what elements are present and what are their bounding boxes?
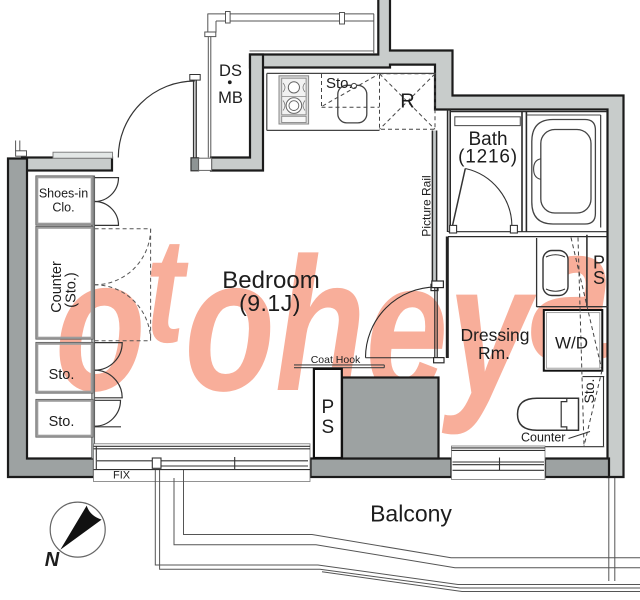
- svg-text:Sto.: Sto.: [326, 75, 353, 92]
- svg-text:(Sto.): (Sto.): [64, 272, 80, 307]
- svg-text:Clo.: Clo.: [52, 201, 74, 215]
- svg-text:Coat Hook: Coat Hook: [311, 354, 361, 366]
- svg-text:N: N: [45, 549, 60, 571]
- svg-text:Dressing: Dressing: [460, 325, 529, 345]
- svg-text:Picture Rail: Picture Rail: [419, 175, 433, 236]
- svg-text:S: S: [321, 417, 334, 438]
- svg-text:Rm.: Rm.: [478, 343, 510, 363]
- svg-text:Counter: Counter: [521, 431, 565, 445]
- svg-text:W/D: W/D: [555, 334, 588, 353]
- svg-text:P: P: [321, 397, 334, 418]
- svg-text:S: S: [593, 268, 605, 288]
- svg-text:DS: DS: [219, 62, 242, 80]
- svg-text:Sto.: Sto.: [49, 414, 75, 430]
- svg-text:MB: MB: [218, 89, 243, 107]
- svg-text:Sto.: Sto.: [49, 367, 75, 383]
- svg-text:FIX: FIX: [113, 470, 131, 482]
- svg-text:R: R: [400, 91, 414, 113]
- svg-text:Balcony: Balcony: [370, 501, 452, 527]
- svg-text:(1216): (1216): [458, 147, 518, 168]
- svg-text:Sto.: Sto.: [581, 379, 597, 404]
- svg-text:(9.1J): (9.1J): [239, 290, 301, 316]
- svg-text:Shoes-in: Shoes-in: [39, 187, 88, 201]
